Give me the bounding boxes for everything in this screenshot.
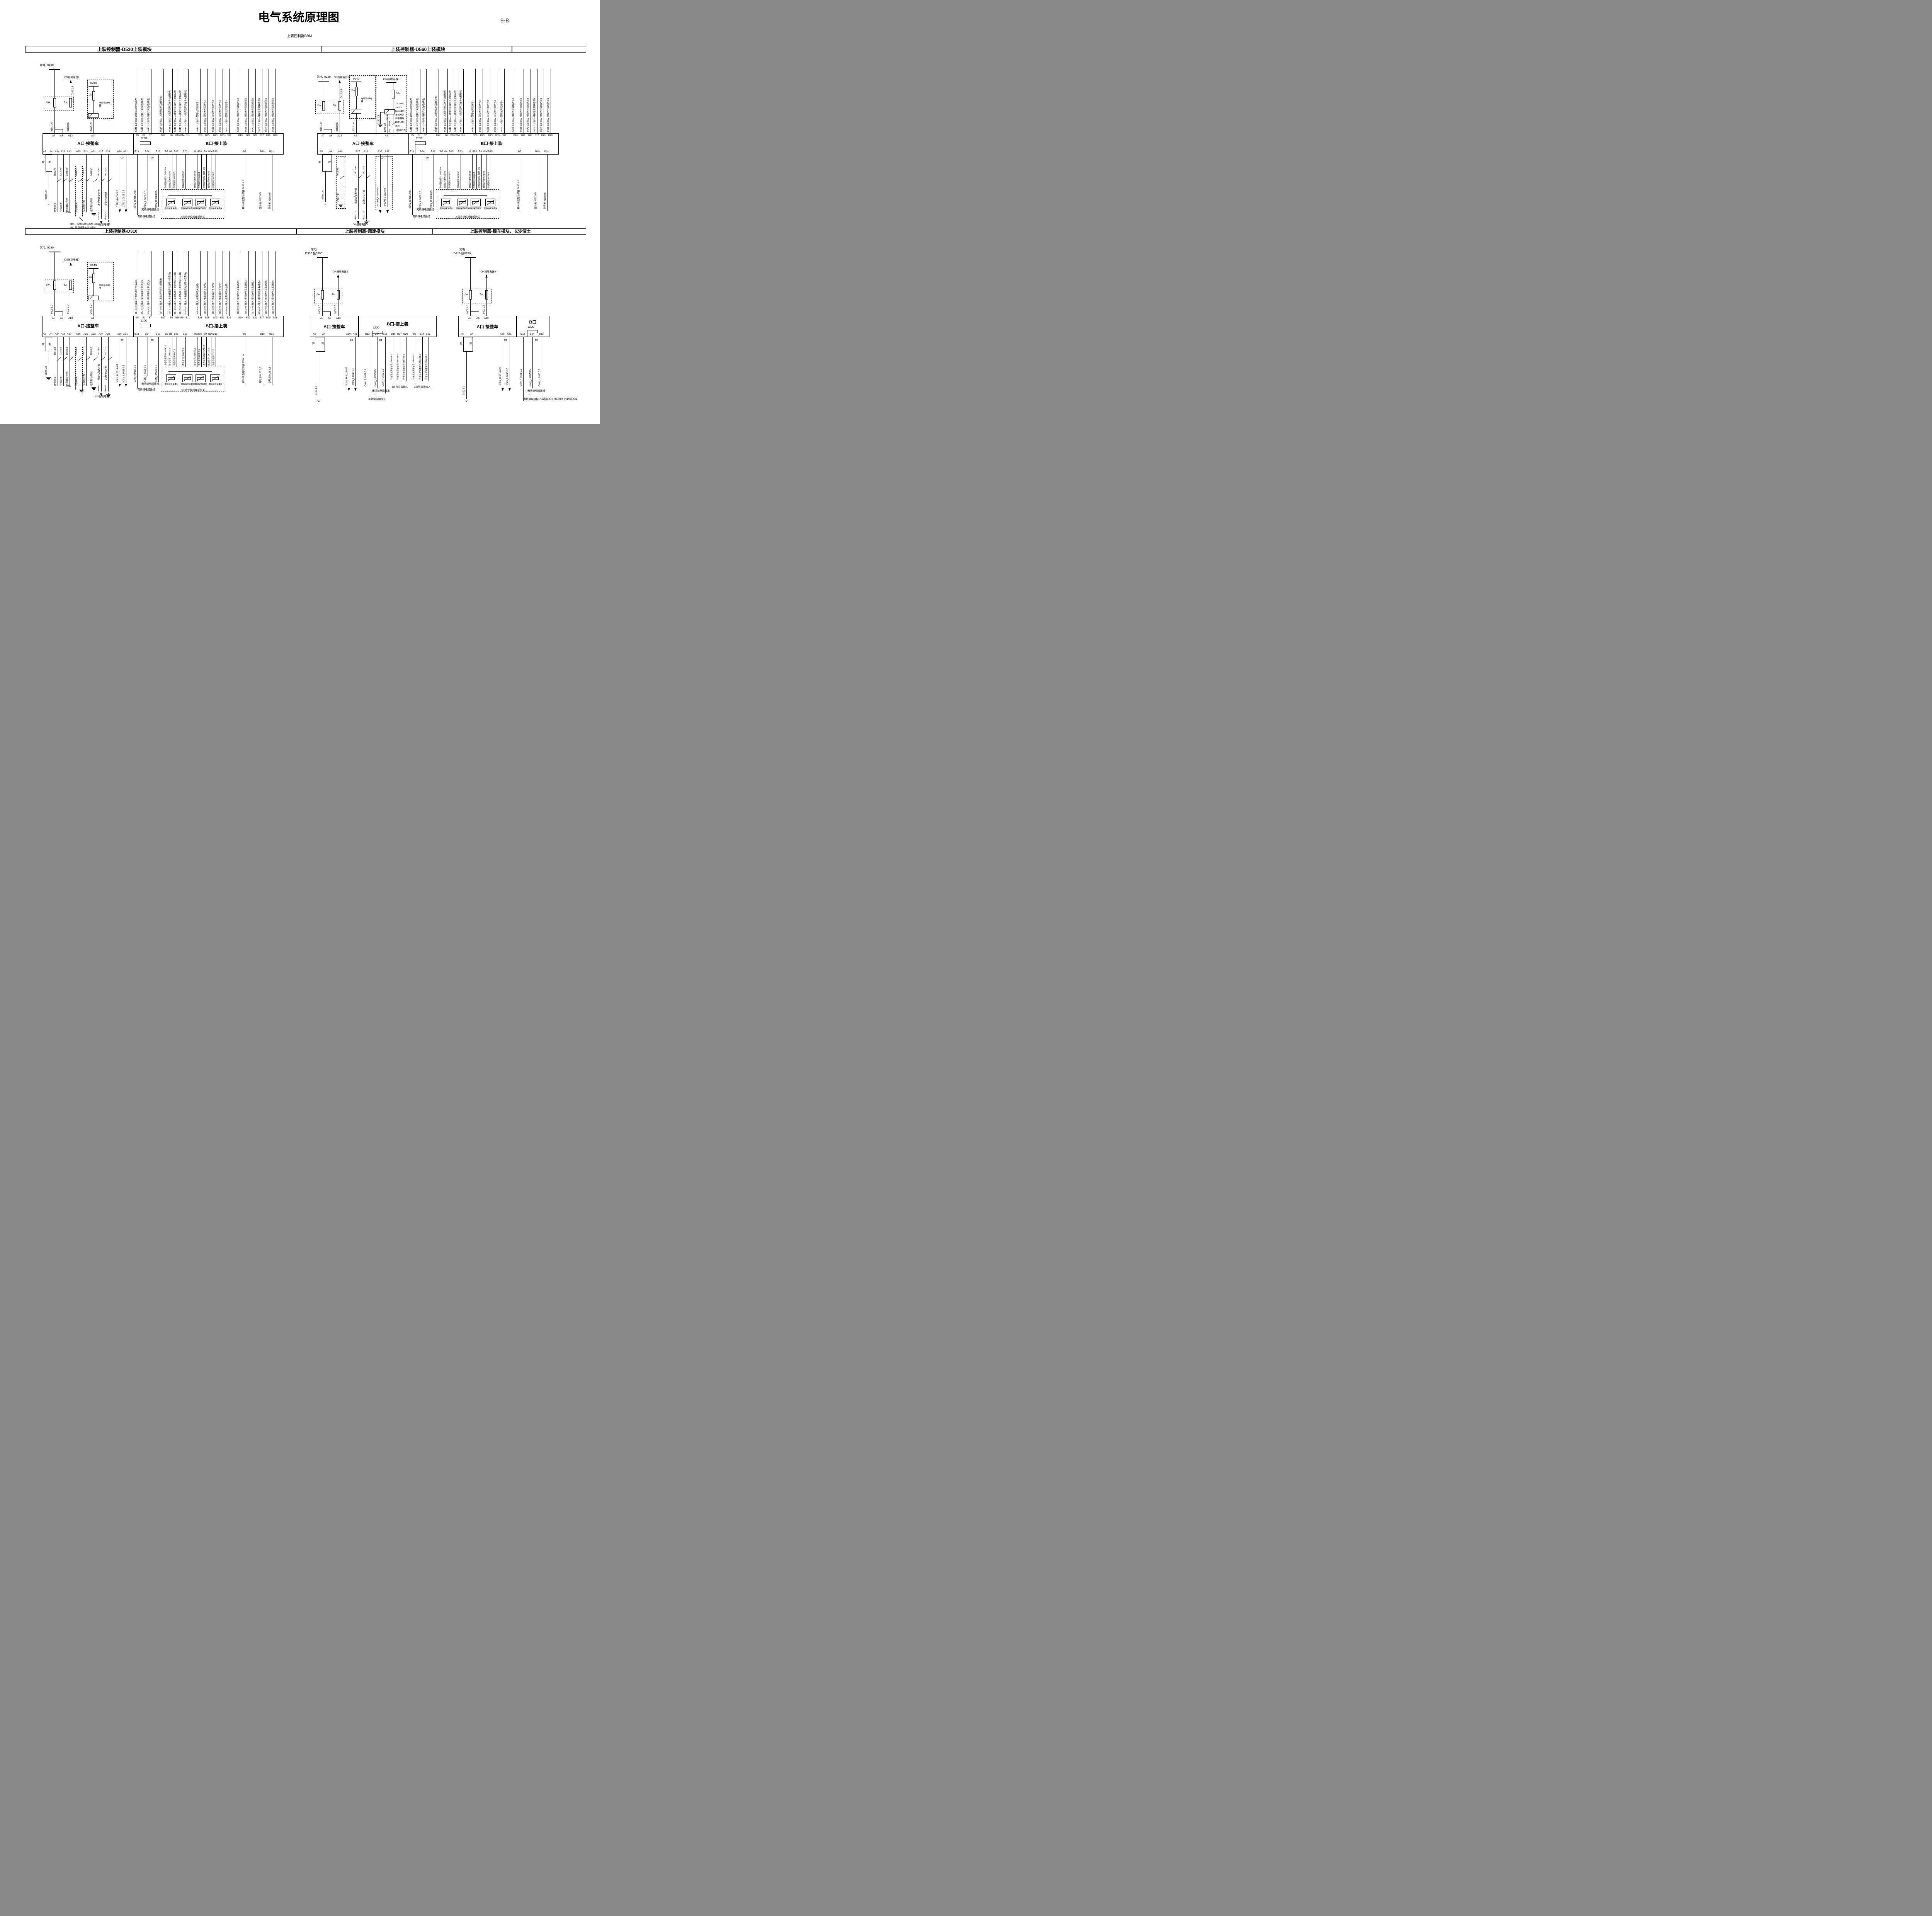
signal-label: 9648 0.5 输入-上装旋钮开关信号4(低有效) [185,253,187,314]
speed-request-label: 转速设定请求信号3 9649 0.5 [403,340,405,379]
output-label: 输出-高边驱动预留 9659 1.0 [243,339,245,383]
pin-label: B17 [260,317,264,320]
horn-relay-label: 电喇叭继电器 [99,284,112,290]
wire-vertical [538,155,538,211]
signal-label: 9652 0.5 输入-低有效开关信号4 [219,253,222,314]
wire-vertical [269,251,269,316]
wire-vertical [206,155,207,189]
wire-vertical [423,155,423,201]
dots: · · · [142,211,145,214]
pin-label: B14 [420,333,424,336]
pin-label: B8 [444,150,447,153]
pin-label: B35 [449,150,454,153]
wire-vertical [71,83,71,133]
can-label: CAN_H 0014 0.5 [500,346,502,385]
wire-vertical [356,96,357,109]
wire-vertical [463,69,464,133]
wire-vertical [211,337,211,367]
fuse-label: 5A [396,92,400,95]
can-label: CAN_H 0014 0.5 [346,346,348,385]
reverse-switch-dash [75,347,76,390]
pin-label: B12 [539,333,544,336]
pin-label: B20 [183,333,187,336]
wire-vertical [322,257,323,316]
arrow-up-icon [337,274,339,277]
pin-label: A29 [105,333,110,336]
wire-vertical [246,337,246,385]
page-number: 9-8 [500,17,509,24]
wire-vertical [151,145,151,155]
wire-horizontal [444,195,487,196]
pin-label: A27 [99,333,103,336]
wire-label: 1004 1.0 [389,116,391,126]
sensor-group-label: 上装系统传感器或开关 [180,216,205,219]
signal-label: 9653 0.5 输入-低有效开关信号5 [501,70,503,132]
wire-label: 9601 1.0 [467,297,469,314]
fuse-10a [469,290,472,299]
wire-vertical [406,337,406,381]
wire-vertical [140,327,140,337]
kill-note: 熄火 [395,125,400,128]
wire-vertical [470,257,471,316]
wire-label: 9611 0.5 [363,157,366,174]
signal-label: 9672 0.5 输入-模拟信号采集通道3 [252,70,255,132]
wire-vertical [63,311,63,316]
header-cell-d530 [25,46,322,53]
pin-label: B13 [520,333,525,336]
pin-label: B28 [273,317,277,320]
wire-vertical [426,145,426,155]
signal-label: 9646 0.5 输入-上装旋钮开关信号2(低有效) [450,70,452,132]
arrow-down-icon [386,210,389,213]
wire-vertical [185,337,186,367]
sensor-wire-label: 传感器地 9673 0.5 [213,156,215,188]
signal-label: 9650 0.5 输入-低有效开关信号2 [480,70,482,132]
wire-vertical [325,172,326,201]
wire-horizontal [106,394,111,395]
pin-label: B23 [213,317,218,320]
terminal-note: 有终端电阻接法 [138,388,155,391]
pin-label: A1 [91,134,94,138]
wire-vertical [263,155,263,211]
pin-label: B29 [266,134,270,137]
ground-label: 地 [43,157,45,163]
wire-label: 1501 0.5 [54,339,57,355]
wire-horizontal [48,204,49,204]
wire-label: 0150 0.5 [378,107,380,124]
wire-vertical [269,69,269,133]
pin-label: B20 [458,150,463,153]
can-label: CAN_H 9653 0.5 [382,348,384,386]
signal-label: 9653 0.5 输入-低有效开关信号5 [226,253,228,314]
sensor-group-label: 上装系统传感器或开关 [180,389,205,392]
wire-vertical [262,69,262,133]
wire-label: 4013 0.5 [337,157,340,176]
pin-label: B21 [253,134,257,137]
wire-vertical [385,337,386,393]
pin-label: A30 [500,333,505,336]
pin-label: B13 [410,150,414,153]
sensor-wire-label: 传感器电源5V 9670 0.5 [204,156,206,188]
wire-horizontal [365,222,368,223]
sensor-wire-label: 传感器地 9669 0.5 [474,156,476,188]
pin-label: B15 [213,150,218,153]
header-label-d560: 上装控制器-D560上装模块 [391,47,446,52]
speed-request-label: 转速设定请求信号1 9646 0.5 [391,340,393,379]
ground-icon [319,397,319,399]
signal-label: 9654 0.5 输入-模拟信号采集通道1 [238,253,240,314]
wire-horizontal [47,378,50,379]
signal-label: 9658 0.5 输入-模拟信号采集通道6 [272,253,275,314]
wire-horizontal [325,204,326,204]
sensor-wire-label: 传感器地 9669 0.5 [199,339,201,366]
can-label: PCAN_H 5011 0.5 [377,169,379,206]
wire-vertical [151,327,151,337]
pin-label: A7 [320,317,323,320]
wire-horizontal [324,203,327,203]
wire-vertical [197,155,197,189]
wire-vertical [420,69,420,133]
horn-relay-label: 电喇叭继电器 [361,98,374,103]
wire-vertical [229,69,230,133]
wire-vertical [429,337,429,381]
pin-label: A6 [329,134,332,138]
wire-vertical [372,334,372,337]
speed-caption: 3路高有效输入 [392,386,408,389]
pin-label: A18 [61,150,65,153]
arrow-down-icon [348,388,350,391]
switch-label: 发动机限速开关 [98,180,100,206]
wire-horizontal [464,399,469,399]
sensor-wire-label: 模拟信号1 9665 0.5 [169,156,171,188]
pin-label: B8 [169,333,172,336]
fuse-label: 10A [316,104,321,107]
pin-label: B18 [469,150,474,153]
can-label: CAN_L 0015 0.5 [352,346,355,385]
signal-label: 9657 0.5 输入-模拟信号采集通道5 [541,70,543,132]
pin-label: B11 [186,317,190,320]
page-subtitle: 上装控制器BBM [287,34,312,38]
terminating-resistor [140,324,151,327]
pin-label: A10 [67,333,71,336]
pin-label: A13 [336,317,341,320]
wire-vertical [151,69,151,133]
pin-label: B16 [175,317,180,320]
signal-label: 9647 0.5 输入-上装旋钮开关信号3(低有效) [180,253,182,314]
switch-label: 位置灯开关 [83,359,85,386]
pin-label: A13 [337,134,342,138]
wire-vertical [201,155,202,189]
wire-vertical [94,300,94,316]
can-label: CAN_L 9652 0.5 [374,348,377,386]
wire-horizontal [316,399,321,399]
wire-label: 0603 0.5 [76,339,78,355]
switch-label: 取力开关 [54,180,57,212]
wire-horizontal [107,224,109,225]
fuse-label: 10A [350,89,355,92]
wire-vertical [183,251,183,316]
signal-label: 9644 0.5 输入-上装喇叭开关(低有效) [435,70,438,132]
ground-bracket [463,337,473,352]
kill-note: ks1x改制 [395,110,405,113]
pin-label: B22 [246,317,250,320]
pin-label: B6 [199,333,202,336]
sensor-wire-label: 模拟信号1 9665 0.5 [169,339,171,366]
wire-vertical [255,69,256,133]
pin-label: A30 [117,333,122,336]
wire-vertical [200,251,201,316]
pin-label: A10 [67,150,71,153]
pin-label: B3 [518,150,521,153]
wire-vertical [148,337,148,376]
wire-horizontal [466,401,467,402]
signal-label: 9646 0.5 输入-上装旋钮开关信号2(低有效) [175,70,177,132]
wire-vertical [263,337,263,385]
wire-label: 9611 0.5 [105,157,107,176]
wire-label: 0212 0.5 [60,157,63,176]
ground-label: 地 [313,339,315,345]
pin-label: B16 [451,134,455,137]
signal-label: 9658 0.5 输入-模拟信号采集通道6 [548,70,550,132]
pin-label: B32 [227,317,231,320]
wire-vertical [476,155,477,189]
wire-label: 9602 0.5 [483,297,485,314]
wire-vertical [416,337,416,381]
pin-label: B26 [198,134,202,137]
header-cell-empty [512,46,586,53]
note: 康机 [80,390,84,392]
pin-label: A7 [468,317,471,320]
wire-vertical [94,155,94,212]
wire-horizontal [92,214,95,215]
can-label: CAN_L 0015 0.5 [123,342,125,382]
terminal-note: 有终端电阻接法 [413,215,430,218]
ground-icon [380,123,381,124]
wire-vertical [58,155,58,212]
terminating-resistor [140,141,151,145]
pin-label: A5 [43,150,46,153]
wire-label: 1302 0.5 [66,157,69,176]
sensor-wire-label: 传感器电源5V 9664 1.0 [165,339,167,366]
signal-label: 9655 0.5 输入-模拟信号采集通道2 [245,253,248,314]
pin-label: A5 [461,333,464,336]
signal-label: 9648 0.5 输入-上装旋钮开关信号4(低有效) [460,70,463,132]
wire-vertical [94,337,94,386]
wire-vertical [183,69,183,133]
signal-label: 9657 0.5 输入-模拟信号采集通道5 [265,253,268,314]
ground-icon [108,393,109,394]
fuse-label: 5A [333,104,336,107]
pin-label: A1 [91,317,94,320]
signal-label: 9654 0.5 输入-模拟信号采集通道1 [238,70,240,132]
arrow-down-icon [125,209,127,213]
connector-a-title: A口-接整车 [477,325,498,330]
header-label-d310: 上装控制器-D310 [105,229,138,234]
wire-vertical [229,251,230,316]
header-label-speed: 上装控制器-调速模块 [345,229,385,234]
pin-label: A13 [484,317,489,320]
wire-horizontal [93,216,95,216]
wire-vertical [177,337,177,367]
wire-vertical [168,155,168,189]
can-label: CAN_L 9662 0.5 [420,158,422,208]
connector-b-title: B口-接上装 [206,141,227,146]
pin-label: B15 [213,333,218,336]
wire-vertical [108,155,109,219]
pin-label: B7 [149,134,151,137]
pin-label: B9 [479,150,482,153]
connector-b-title: B口 [529,320,537,325]
wire-vertical [206,337,207,367]
wire-horizontal [366,223,367,224]
wire-label: 0209 0.5 [98,207,100,220]
wire-vertical [516,69,516,133]
terminal-note: 有终端电阻接法 [368,398,386,401]
wire-label: 2022 1.0 [90,115,92,131]
pin-label: B21 [528,134,532,137]
pin-label: B5 [413,333,416,336]
wire-vertical [70,155,70,212]
wire-vertical [475,69,476,133]
signal-label: 9649 0.5 输入-低有效开关信号1 [472,70,474,132]
wire-horizontal [92,388,95,388]
relay1-label: ON挡继电器1 [383,78,400,81]
pin-label: A7 [52,317,55,320]
wire-vertical [319,352,319,398]
wire-horizontal [465,400,468,400]
wire-vertical [400,337,400,381]
wire-vertical [276,69,276,133]
wire-vertical [338,277,338,316]
wire-label: 0100 1.0 [45,357,48,375]
pin-label: B32 [502,134,506,137]
wire-label: 9611 0.5 [105,339,107,355]
pin-label: B3 [243,333,246,336]
wire-label: 0100 1.0 [45,182,48,199]
can-label: CAN_R 9661 0.5 [134,340,136,382]
terminal-note: 无终端电阻接法 [141,208,159,211]
wire-vertical [447,69,448,133]
pin-label: B25 [205,134,209,137]
wire-vertical [439,69,439,133]
wire-vertical [452,155,452,189]
terminating-resistor-label: 120Ω [373,327,379,330]
ground-label: 地 [460,339,463,345]
wire-vertical [380,155,381,207]
wire-horizontal [48,379,49,380]
ground-icon [49,376,49,377]
wire-vertical [63,155,64,212]
ground-bracket [316,337,325,352]
wire-label: 9612 0.5 [98,157,100,176]
pin-label: B19 [260,150,265,153]
pin-label: A30 [117,150,122,153]
wire-vertical [434,155,434,207]
kill-note: 继电器控 [395,117,404,120]
header-label-lock: 上装控制器-锁车模块、长沙渣土 [470,229,531,234]
can-label: CAN_H 0014 0.5 [117,342,119,382]
wire-vertical [163,69,164,133]
pin-label: B10 [238,317,243,320]
wire-label: 9612 0.5 [98,339,100,355]
pin-label: B13 [134,333,139,336]
pin-label: B27 [397,333,402,336]
switch-label: 取力开关 [54,359,57,386]
fuse-label: 10A [46,284,51,287]
sensor-group-label: 上装系统传感器或开关 [455,216,480,219]
pin-label: B18 [194,150,199,153]
wire-vertical [422,337,423,381]
sensor-caption: 模拟信号采集3 [194,383,207,386]
wire-label: 1408 0.5 [91,157,93,176]
signal-label: 9656 0.5 输入-模拟信号采集通道4 [534,70,536,132]
sensor-wire-label: 模拟信号2 9667 0.5 [183,156,185,188]
sensor-wire-label: 模拟信号2 9667 0.5 [183,339,185,366]
wire-label: 0100 1.0 [322,182,324,199]
signal-label: 9641 1.0 输出-驻车制动信号(高边) [136,253,138,314]
signal-label: 9643 0.5 输出-倒挡开关信号(低边) [423,70,425,132]
pin-label: A27 [99,150,103,153]
signal-label: 9650 0.5 输入-低有效开关信号2 [204,70,207,132]
pin-label: B5 [170,134,173,137]
sensor-caption: 模拟信号采集3 [469,208,482,210]
fuse-label: 10A [46,101,51,104]
wire-label: 9602 0.5 [336,114,338,131]
wire-vertical [178,69,178,133]
kill-note: -94201 [395,107,402,109]
relay2-label: ON挡继电器2 [334,76,349,79]
wire-label: 9602 0.5 [67,297,70,314]
wire-vertical [447,155,447,189]
pin-label: B25 [205,317,209,320]
connector-b-title: B口-接上装 [206,324,227,329]
pin-label: B5 [445,134,448,137]
wire-vertical [201,337,202,367]
fuse-label: 10A [463,293,468,296]
wire-horizontal [322,311,330,312]
signal-label: 9672 0.5 输入-模拟信号采集通道3 [252,253,255,314]
signal-label: 9657 0.5 输入-模拟信号采集通道5 [265,70,268,132]
output-label: 信号地 0198 0.5 [269,157,271,209]
signal-label: 9646 0.5 输入-上装旋钮开关信号2(低有效) [175,253,177,314]
wire-label: 1408 0.5 [91,339,93,355]
wire-vertical [276,251,276,316]
switch-label: 驻车制动开关 [91,180,93,212]
pin-label: B4 [412,134,414,137]
fuse-10a [321,290,324,299]
wire-vertical [148,155,148,201]
fuse-label: 5A [64,101,67,104]
wire-vertical [532,337,533,388]
pin-label: A4 [49,333,53,336]
sensor-wire-label: 模拟信号4 9671 0.5 [208,339,210,366]
pin-label: B14 [456,134,460,137]
can-label: PCAN_L 5012 0.5 [384,169,387,206]
pin-label: A6 [60,134,63,138]
wire-horizontal [386,82,396,83]
wire-label: 9602 0.5 [335,297,337,314]
switch-label: 定速PTO开关 [105,180,107,206]
terminating-resistor-label: 120Ω [416,137,422,140]
sensor-caption: 模拟信号采集4 [484,208,497,210]
pin-label: A29 [105,150,110,153]
sensor-caption: 模拟信号采集2 [181,208,194,210]
pin-label: B33 [495,134,500,137]
arrow-up-icon [70,262,72,265]
wire-horizontal [46,377,51,378]
twisted-pair-icon: ∞ [151,338,154,343]
pin-label: B8 [169,150,172,153]
